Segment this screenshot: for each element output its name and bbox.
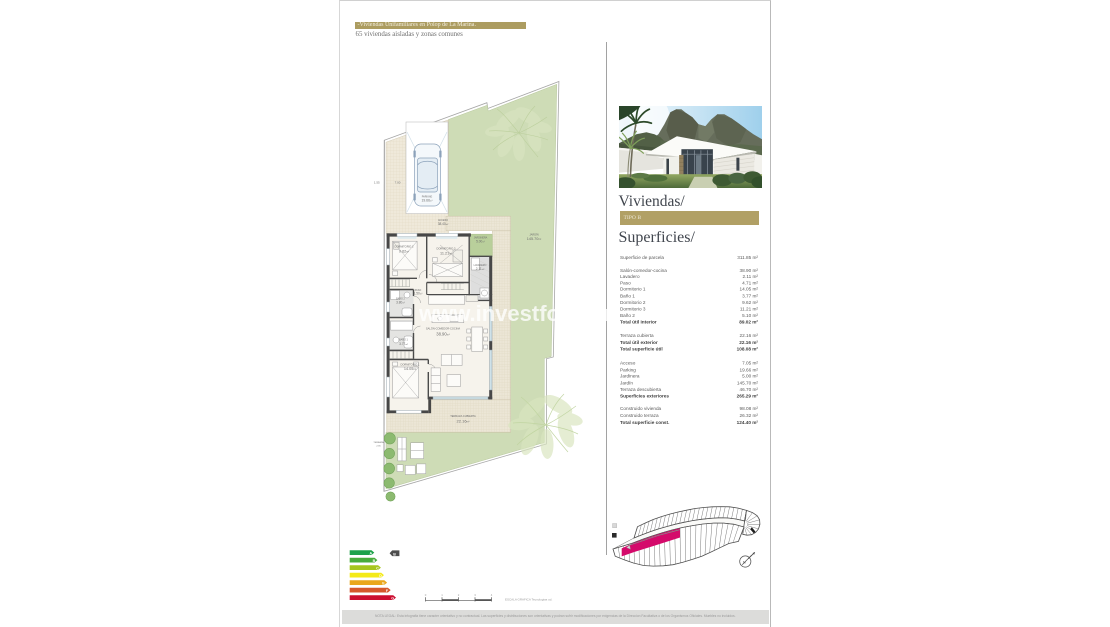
svg-text:26.32 m²: 26.32 m² — [740, 413, 759, 418]
svg-text:Total superficie útil: Total superficie útil — [620, 347, 663, 352]
svg-text:Total superficie const.: Total superficie const. — [620, 420, 669, 425]
svg-text:Construido terraza: Construido terraza — [620, 413, 659, 418]
svg-text:7.00: 7.00 — [395, 181, 401, 185]
svg-text:Lavadero: Lavadero — [620, 274, 640, 279]
svg-text:B: B — [373, 559, 376, 563]
svg-text:Acceso: Acceso — [620, 361, 636, 366]
svg-text:Dormitorio 3: Dormitorio 3 — [620, 306, 646, 311]
svg-text:Baño 1: Baño 1 — [620, 294, 635, 299]
svg-text:Dormitorio 1: Dormitorio 1 — [620, 287, 646, 292]
svg-text:C: C — [376, 566, 379, 570]
svg-text:D: D — [379, 574, 382, 578]
svg-text:5.10 m²: 5.10 m² — [742, 313, 758, 318]
svg-text:Paso: Paso — [620, 280, 631, 285]
svg-text:TERRAZA: TERRAZA — [373, 441, 384, 444]
svg-text:124.40 m²: 124.40 m² — [737, 420, 759, 425]
svg-text:14.05 m²: 14.05 m² — [740, 287, 759, 292]
svg-text:B: B — [393, 552, 396, 556]
svg-text:A: A — [370, 551, 373, 555]
svg-text:Total útil interior: Total útil interior — [620, 320, 657, 325]
svg-text:DORMITORIO 2: DORMITORIO 2 — [395, 245, 415, 249]
svg-text:145.70 m²: 145.70 m² — [737, 380, 759, 385]
svg-text:4.71 m²: 4.71 m² — [742, 280, 758, 285]
svg-text:98.08 m²: 98.08 m² — [740, 406, 759, 411]
svg-text:0: 0 — [425, 593, 427, 597]
svg-text:108.08 m²: 108.08 m² — [737, 347, 759, 352]
svg-text:Salón-comedor-cocina: Salón-comedor-cocina — [620, 268, 667, 273]
svg-text:11.21 m²: 11.21 m² — [740, 306, 759, 311]
svg-text:2.35: 2.35 — [376, 445, 381, 447]
svg-text:Terraza cubierta: Terraza cubierta — [620, 333, 654, 338]
svg-text:265.29 m²: 265.29 m² — [737, 393, 759, 398]
svg-text:22.16 m²: 22.16 m² — [740, 333, 759, 338]
svg-text:Jardín: Jardín — [620, 380, 633, 385]
svg-text:2: 2 — [458, 593, 460, 597]
svg-text:3: 3 — [474, 593, 476, 597]
svg-text:2.11 m²: 2.11 m² — [742, 274, 758, 279]
svg-text:Total útil exterior: Total útil exterior — [620, 340, 658, 345]
svg-text:DORMITORIO 3: DORMITORIO 3 — [437, 247, 457, 251]
svg-text:Parking: Parking — [620, 367, 636, 372]
svg-text:19.66 m²: 19.66 m² — [740, 367, 759, 372]
svg-text:Superficie de parcela: Superficie de parcela — [620, 255, 664, 260]
svg-text:145.70m²: 145.70m² — [527, 237, 542, 241]
svg-text:Construido vivienda: Construido vivienda — [620, 406, 662, 411]
svg-text:Jardinera: Jardinera — [620, 374, 640, 379]
svg-text:1.55: 1.55 — [374, 181, 380, 185]
svg-text:DORMITORIO 1: DORMITORIO 1 — [401, 362, 421, 366]
svg-text:N: N — [743, 561, 746, 565]
svg-text:TERRAZA CUBIERTA: TERRAZA CUBIERTA — [450, 414, 476, 418]
svg-text:22.16 m²: 22.16 m² — [739, 340, 758, 345]
svg-text:3.77 m²: 3.77 m² — [742, 294, 758, 299]
svg-text:Dormitorio 2: Dormitorio 2 — [620, 300, 646, 305]
svg-text:Superficies exteriores: Superficies exteriores — [620, 393, 669, 398]
svg-text:38.90 m²: 38.90 m² — [740, 268, 759, 273]
svg-text:89.02 m²: 89.02 m² — [739, 320, 758, 325]
svg-text:9.62 m²: 9.62 m² — [742, 300, 758, 305]
svg-text:4: 4 — [491, 593, 493, 597]
svg-text:9.62m²: 9.62m² — [399, 249, 409, 253]
svg-text:11.21m²: 11.21m² — [440, 251, 452, 255]
svg-text:1: 1 — [441, 593, 443, 597]
svg-text:Baño 2: Baño 2 — [620, 313, 635, 318]
svg-text:G: G — [391, 596, 394, 600]
svg-text:311.85 m²: 311.85 m² — [737, 255, 758, 260]
svg-text:7.05 m²: 7.05 m² — [742, 361, 758, 366]
svg-text:Terraza descubierta: Terraza descubierta — [620, 387, 662, 392]
svg-text:JARDÍN: JARDÍN — [529, 232, 538, 236]
svg-text:5.00 m²: 5.00 m² — [742, 374, 758, 379]
svg-text:46.70 m²: 46.70 m² — [740, 387, 759, 392]
svg-text:14.05m²: 14.05m² — [404, 367, 417, 371]
svg-text:ESCALA GRAFICA Tecnologias ud: ESCALA GRAFICA Tecnologias ud. — [505, 597, 552, 601]
